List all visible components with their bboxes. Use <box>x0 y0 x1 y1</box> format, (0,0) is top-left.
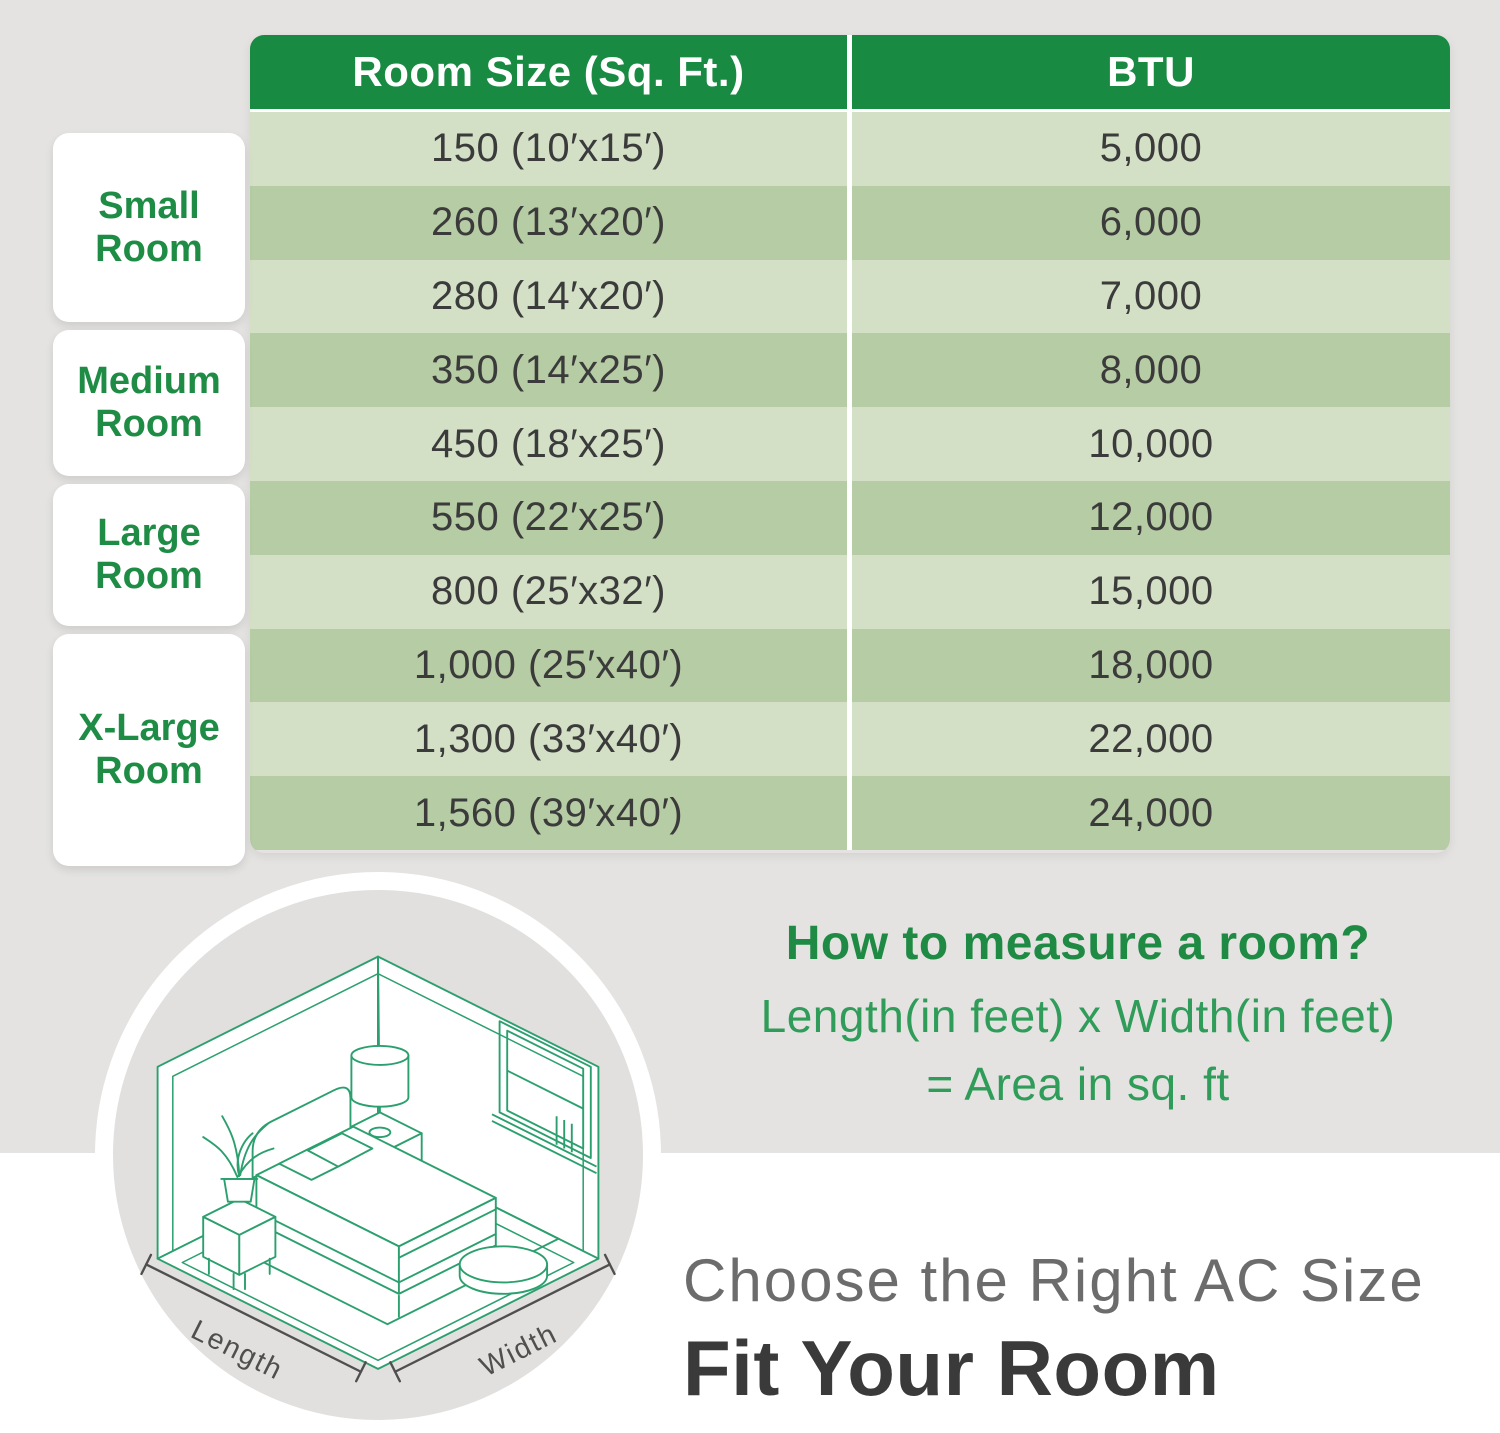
btu-cell: 24,000 <box>852 776 1450 850</box>
room-size-cell: 350 (14′x25′) <box>250 333 847 407</box>
table-row: 280 (14′x20′)7,000 <box>250 260 1450 334</box>
measure-instructions: How to measure a room? Length(in feet) x… <box>640 916 1500 1125</box>
btu-cell: 7,000 <box>852 260 1450 334</box>
btu-cell: 5,000 <box>852 112 1450 186</box>
room-size-cell: 1,300 (33′x40′) <box>250 702 847 776</box>
infographic-canvas: Room Size (Sq. Ft.) BTU 150 (10′x15′)5,0… <box>0 0 1500 1433</box>
category-card-xlarge-room: X-Large Room <box>53 634 245 866</box>
category-card-medium-room: Medium Room <box>53 330 245 476</box>
room-size-cell: 150 (10′x15′) <box>250 112 847 186</box>
measure-formula-line1: Length(in feet) x Width(in feet) <box>640 989 1500 1043</box>
room-size-cell: 550 (22′x25′) <box>250 481 847 555</box>
column-header-room-size: Room Size (Sq. Ft.) <box>250 35 847 109</box>
table-row: 1,560 (39′x40′)24,000 <box>250 776 1450 850</box>
btu-cell: 22,000 <box>852 702 1450 776</box>
footer-title: Fit Your Room <box>683 1323 1425 1414</box>
btu-cell: 12,000 <box>852 481 1450 555</box>
table-body: 150 (10′x15′)5,000 260 (13′x20′)6,000 28… <box>250 112 1450 850</box>
table-header-row: Room Size (Sq. Ft.) BTU <box>250 35 1450 112</box>
room-size-cell: 450 (18′x25′) <box>250 407 847 481</box>
measure-title: How to measure a room? <box>640 916 1500 971</box>
room-size-cell: 1,560 (39′x40′) <box>250 776 847 850</box>
footer-subtitle: Choose the Right AC Size <box>683 1246 1425 1315</box>
footer-headline: Choose the Right AC Size Fit Your Room <box>683 1246 1425 1414</box>
btu-cell: 10,000 <box>852 407 1450 481</box>
table-row: 350 (14′x25′)8,000 <box>250 333 1450 407</box>
measure-formula-line2: = Area in sq. ft <box>640 1057 1500 1111</box>
btu-cell: 6,000 <box>852 186 1450 260</box>
room-size-cell: 260 (13′x20′) <box>250 186 847 260</box>
table-row: 260 (13′x20′)6,000 <box>250 186 1450 260</box>
room-size-cell: 800 (25′x32′) <box>250 555 847 629</box>
table-row: 150 (10′x15′)5,000 <box>250 112 1450 186</box>
category-card-small-room: Small Room <box>53 133 245 322</box>
btu-cell: 18,000 <box>852 629 1450 703</box>
length-dimension-label: Length <box>186 1314 288 1387</box>
room-size-cell: 1,000 (25′x40′) <box>250 629 847 703</box>
table-row: 1,000 (25′x40′)18,000 <box>250 629 1450 703</box>
table-row: 550 (22′x25′)12,000 <box>250 481 1450 555</box>
room-size-cell: 280 (14′x20′) <box>250 260 847 334</box>
isometric-bedroom-illustration: Length Width <box>112 930 644 1405</box>
pouf-icon <box>460 1246 547 1294</box>
table-row: 1,300 (33′x40′)22,000 <box>250 702 1450 776</box>
table-row: 450 (18′x25′)10,000 <box>250 407 1450 481</box>
btu-cell: 15,000 <box>852 555 1450 629</box>
column-header-btu: BTU <box>852 35 1450 109</box>
category-card-large-room: Large Room <box>53 484 245 626</box>
table-row: 800 (25′x32′)15,000 <box>250 555 1450 629</box>
btu-sizing-table: Room Size (Sq. Ft.) BTU 150 (10′x15′)5,0… <box>250 35 1450 853</box>
width-dimension-label: Width <box>475 1318 563 1383</box>
btu-cell: 8,000 <box>852 333 1450 407</box>
